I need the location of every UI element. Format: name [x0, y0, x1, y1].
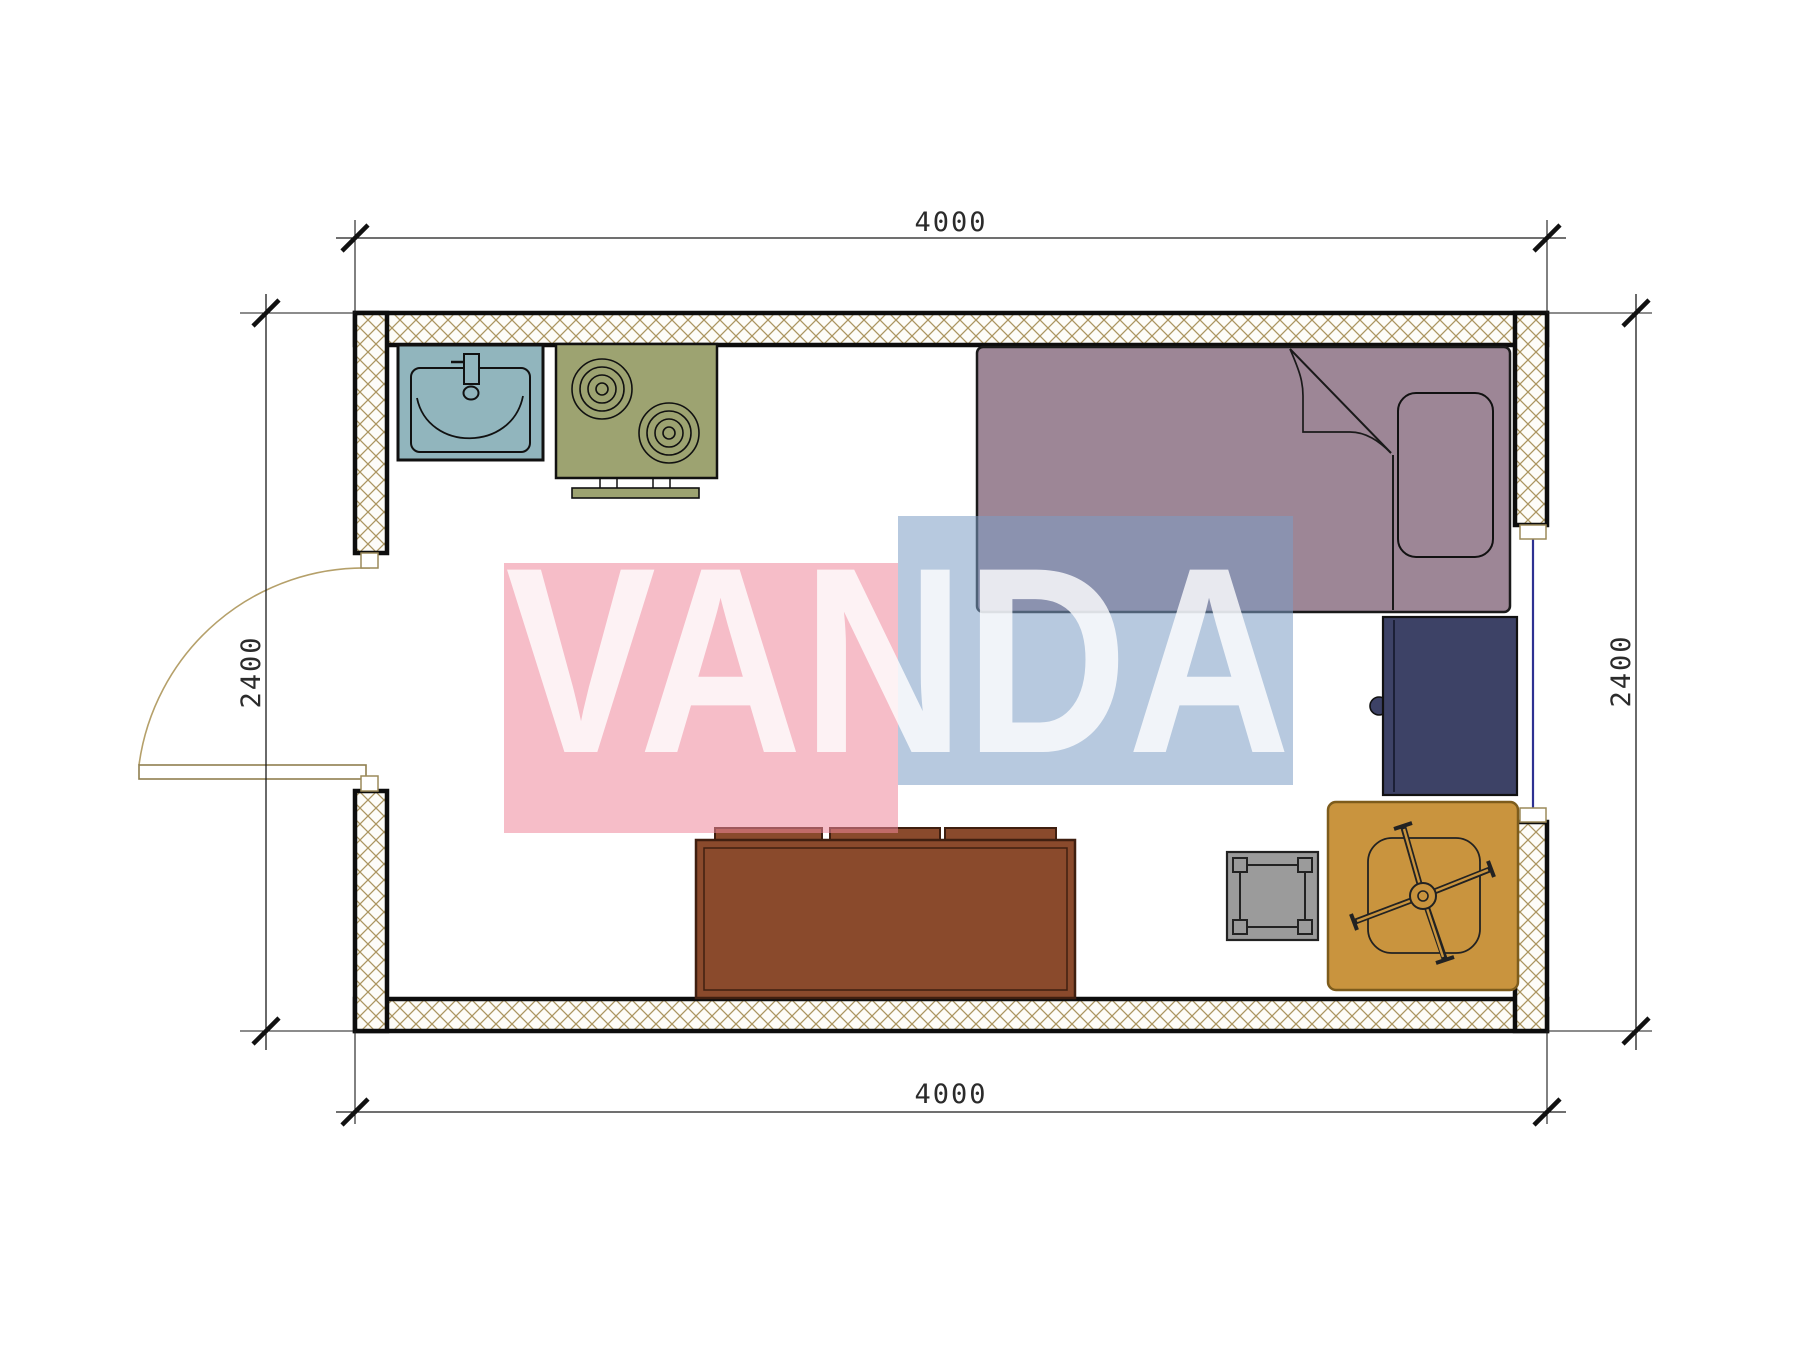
watermark-text: VANDA: [506, 513, 1291, 809]
dimension-label-bottom: 4000: [914, 1079, 987, 1110]
dimension-label-top: 4000: [914, 207, 987, 238]
bed-pillow: [1398, 393, 1493, 557]
dimension-right: 2400: [1547, 294, 1652, 1050]
dimension-bottom: 4000: [336, 1031, 1566, 1125]
window-frame-bottom: [1520, 808, 1546, 822]
dimension-label-right: 2400: [1606, 634, 1637, 707]
sofa: [696, 828, 1075, 998]
floor-plan-canvas: 4000 4000 2400 2400 VANDA: [0, 0, 1800, 1350]
chair-hub: [1410, 883, 1436, 909]
door-leaf: [139, 765, 366, 779]
stool-leg: [1298, 858, 1312, 872]
stove-top: [556, 344, 717, 478]
stove: [556, 344, 717, 498]
desk-body: [1383, 617, 1517, 795]
stove-handle-bar: [572, 488, 699, 498]
wall-right-upper: [1515, 313, 1547, 525]
stool: [1227, 852, 1318, 940]
dimension-label-left: 2400: [236, 635, 267, 708]
desk: [1370, 617, 1517, 795]
wall-top: [355, 313, 1547, 345]
watermark: VANDA: [504, 513, 1293, 833]
dimension-top: 4000: [336, 207, 1566, 313]
wall-left-upper: [355, 313, 387, 553]
office-chair: [1328, 802, 1518, 990]
window-frame-top: [1520, 525, 1546, 539]
stool-leg: [1233, 858, 1247, 872]
floor-plan-page: 4000 4000 2400 2400 VANDA: [0, 0, 1800, 1350]
wall-left-lower: [355, 791, 387, 1031]
faucet-body: [464, 354, 479, 384]
stool-leg: [1233, 920, 1247, 934]
wall-bottom: [355, 999, 1547, 1031]
sofa-body: [696, 840, 1075, 998]
door-frame-bottom: [361, 776, 378, 791]
window-right: [1520, 525, 1546, 822]
door-frame-top: [361, 553, 378, 568]
dimension-left: 2400: [236, 294, 355, 1050]
wall-right-lower: [1515, 822, 1547, 1031]
stool-leg: [1298, 920, 1312, 934]
sink: [398, 345, 543, 460]
